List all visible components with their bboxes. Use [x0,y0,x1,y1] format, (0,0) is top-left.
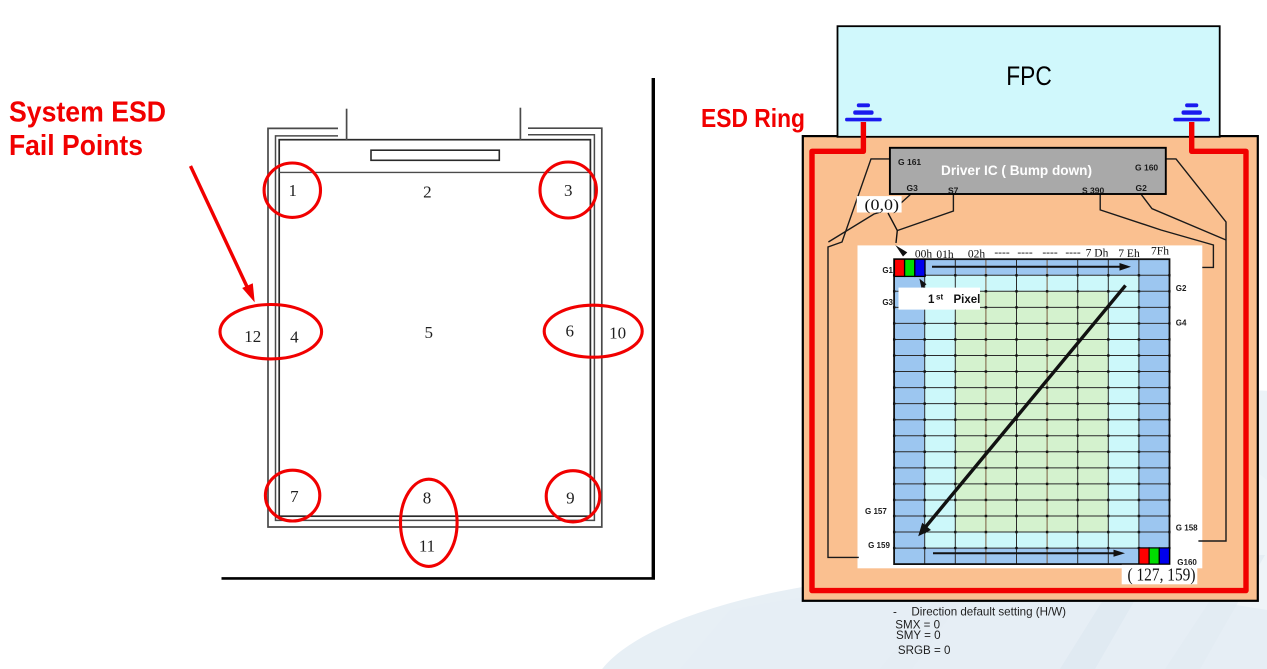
svg-text:7 Dh: 7 Dh [1086,248,1109,260]
svg-text:7Fh: 7Fh [1151,246,1169,258]
svg-text:ESD Ring: ESD Ring [701,103,805,133]
svg-text:2: 2 [423,183,432,202]
svg-text:----: ---- [1017,247,1032,259]
svg-text:G 158: G 158 [1176,524,1198,533]
svg-text:S 390: S 390 [1082,185,1104,195]
svg-text:G 159: G 159 [868,541,890,550]
svg-text:02h: 02h [968,249,986,261]
svg-text:6: 6 [565,322,574,341]
svg-text:G3: G3 [882,298,893,307]
svg-text:G2: G2 [1136,183,1148,193]
svg-text:11: 11 [419,537,435,556]
svg-text:S7: S7 [948,185,959,195]
svg-text:5: 5 [425,323,434,342]
svg-text:1: 1 [928,294,935,306]
svg-text:1: 1 [289,181,298,200]
svg-text:7 Eh: 7 Eh [1118,248,1140,260]
svg-text:G 160: G 160 [1135,163,1158,173]
svg-text:SRGB = 0: SRGB = 0 [898,644,951,657]
svg-text:st: st [936,293,943,302]
svg-text:(0,0): (0,0) [865,197,900,214]
svg-text:Direction default setting (H/: Direction default setting (H/W) [911,606,1066,619]
svg-text:9: 9 [566,489,575,508]
svg-text:8: 8 [423,489,432,508]
svg-text:4: 4 [290,328,299,347]
svg-text:----: ---- [1042,247,1057,259]
svg-text:G2: G2 [1176,284,1187,293]
svg-text:G1: G1 [882,266,893,275]
svg-text:G4: G4 [1176,319,1187,328]
svg-text:FPC: FPC [1006,61,1052,91]
svg-text:3: 3 [564,181,573,200]
svg-text:( 127, 159): ( 127, 159) [1128,565,1196,585]
svg-text:12: 12 [244,327,261,346]
svg-text:System ESD: System ESD [9,97,166,129]
svg-text:G3: G3 [907,183,919,193]
svg-text:----: ---- [994,247,1009,259]
svg-text:10: 10 [609,323,626,342]
svg-text:00h: 00h [915,249,933,261]
svg-text:01h: 01h [936,249,954,261]
svg-text:G 157: G 157 [865,507,887,516]
svg-text:7: 7 [290,487,299,506]
svg-text:SMY = 0: SMY = 0 [896,629,941,642]
svg-text:Driver IC ( Bump down): Driver IC ( Bump down) [941,163,1092,179]
svg-text:-: - [893,606,897,619]
svg-text:Fail Points: Fail Points [9,130,143,162]
svg-text:G 161: G 161 [898,157,921,167]
svg-text:Pixel: Pixel [954,294,981,306]
svg-text:----: ---- [1065,247,1080,259]
